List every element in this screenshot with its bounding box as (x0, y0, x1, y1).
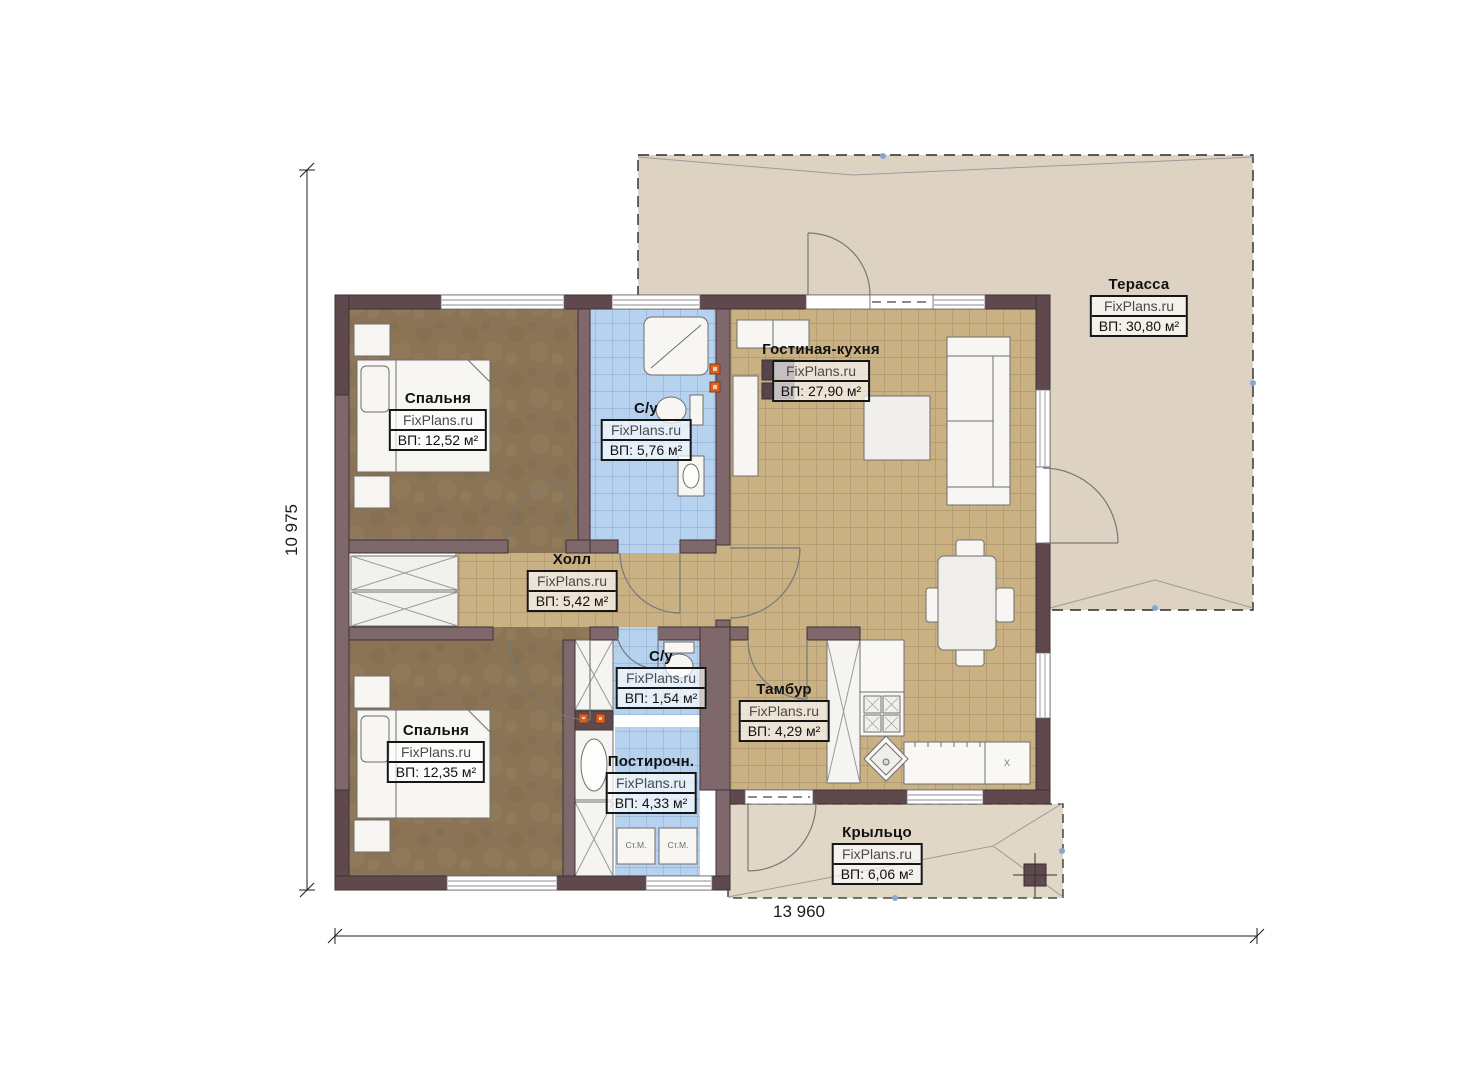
shower (644, 317, 708, 375)
floor-plan-drawing (0, 0, 1473, 1080)
label-bathroom-main: С/у FixPlans.ru ВП: 5,76 м² (601, 400, 692, 461)
room-info-box: FixPlans.ru ВП: 6,06 м² (832, 843, 923, 885)
room-name: Спальня (387, 722, 485, 739)
watermark: FixPlans.ru (603, 421, 690, 441)
room-name: Тамбур (739, 681, 830, 698)
label-living-kitchen: Гостиная-кухня FixPlans.ru ВП: 27,90 м² (762, 341, 880, 402)
watermark: FixPlans.ru (608, 774, 695, 794)
room-info-box: FixPlans.ru ВП: 12,35 м² (387, 741, 485, 783)
room-info-box: FixPlans.ru ВП: 1,54 м² (616, 667, 707, 709)
fridge-mark: x (1004, 755, 1010, 769)
room-info-box: FixPlans.ru ВП: 5,76 м² (601, 419, 692, 461)
label-hall: Холл FixPlans.ru ВП: 5,42 м² (527, 551, 618, 612)
label-vestibule: Тамбур FixPlans.ru ВП: 4,29 м² (739, 681, 830, 742)
room-info-box: FixPlans.ru ВП: 4,29 м² (739, 700, 830, 742)
watermark: FixPlans.ru (389, 743, 483, 763)
room-info-box: FixPlans.ru ВП: 30,80 м² (1090, 295, 1188, 337)
watermark: FixPlans.ru (391, 411, 485, 431)
watermark: FixPlans.ru (774, 362, 868, 382)
room-area: ВП: 12,35 м² (389, 763, 483, 781)
label-bathroom-small: С/у FixPlans.ru ВП: 1,54 м² (616, 648, 707, 709)
room-name: Крыльцо (832, 824, 923, 841)
room-name: Спальня (389, 390, 487, 407)
room-name: Холл (527, 551, 618, 568)
label-porch: Крыльцо FixPlans.ru ВП: 6,06 м² (832, 824, 923, 885)
room-name: Постирочн. (606, 753, 697, 770)
vestibule-cabinet (827, 640, 860, 783)
room-area: ВП: 1,54 м² (618, 689, 705, 707)
label-bedroom-top: Спальня FixPlans.ru ВП: 12,52 м² (389, 390, 487, 451)
watermark: FixPlans.ru (834, 845, 921, 865)
watermark: FixPlans.ru (1092, 297, 1186, 317)
room-name: С/у (601, 400, 692, 417)
sofa (947, 337, 1010, 505)
overall-height-dimension: 10 975 (282, 480, 302, 580)
room-area: ВП: 30,80 м² (1092, 317, 1186, 335)
watermark: FixPlans.ru (618, 669, 705, 689)
washing-machine-label: Ст.М. (668, 840, 689, 850)
hall-wardrobe (351, 556, 458, 626)
floor-plan: Спальня FixPlans.ru ВП: 12,52 м² С/у Fix… (0, 0, 1473, 1080)
sink-main (678, 456, 704, 496)
room-name: Гостиная-кухня (762, 341, 880, 358)
room-info-box: FixPlans.ru ВП: 12,52 м² (389, 409, 487, 451)
label-laundry: Постирочн. FixPlans.ru ВП: 4,33 м² (606, 753, 697, 814)
room-area: ВП: 5,76 м² (603, 441, 690, 459)
watermark: FixPlans.ru (741, 702, 828, 722)
coffee-table (864, 396, 930, 460)
room-info-box: FixPlans.ru ВП: 4,33 м² (606, 772, 697, 814)
watermark: FixPlans.ru (529, 572, 616, 592)
room-area: ВП: 27,90 м² (774, 382, 868, 400)
room-info-box: FixPlans.ru ВП: 5,42 м² (527, 570, 618, 612)
room-area: ВП: 12,52 м² (391, 431, 485, 449)
room-name: С/у (616, 648, 707, 665)
room-area: ВП: 5,42 м² (529, 592, 616, 610)
label-terrace: Терасса FixPlans.ru ВП: 30,80 м² (1090, 276, 1188, 337)
room-area: ВП: 6,06 м² (834, 865, 921, 883)
room-area: ВП: 4,33 м² (608, 794, 695, 812)
overall-width-dimension: 13 960 (749, 902, 849, 922)
room-area: ВП: 4,29 м² (741, 722, 828, 740)
label-bedroom-bottom: Спальня FixPlans.ru ВП: 12,35 м² (387, 722, 485, 783)
room-info-box: FixPlans.ru ВП: 27,90 м² (772, 360, 870, 402)
washing-machine-label: Ст.М. (626, 840, 647, 850)
room-name: Терасса (1090, 276, 1188, 293)
